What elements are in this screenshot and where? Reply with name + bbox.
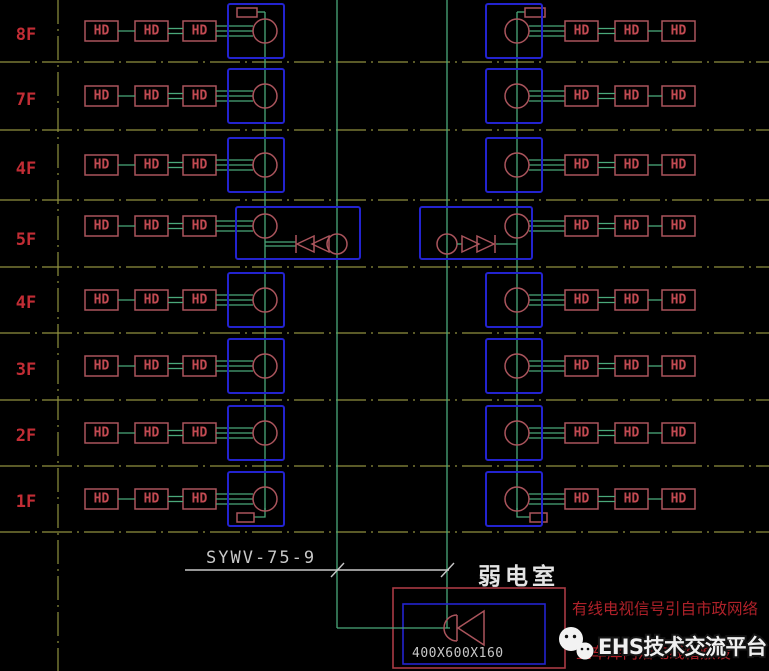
riser-diagram-canvas: HD HD HD HD HD HD	[0, 0, 769, 671]
room-title: 弱电室	[478, 563, 559, 590]
amplifier-floor-row	[85, 207, 695, 259]
floor-label: 4F	[16, 293, 36, 313]
floor-label: 1F	[16, 492, 36, 512]
terminator-resistor	[530, 513, 547, 522]
cabinet-size-label: 400X600X160	[412, 646, 504, 661]
hd-outlet-chain-left	[85, 216, 253, 236]
hd-outlet-chain-right	[529, 489, 695, 509]
hd-outlet-chain-right	[529, 356, 695, 376]
floor-label: 3F	[16, 360, 36, 380]
hd-outlet-chain-right	[529, 86, 695, 106]
hd-outlet-chain-right	[529, 290, 695, 310]
catv-riser-diagram: HD HD HD HD HD HD	[0, 0, 769, 671]
headend-amplifier-arrow	[458, 611, 484, 645]
note-source-line: 有线电视信号引自市政网络	[572, 600, 758, 618]
cable-type-label: SYWV-75-9	[206, 548, 316, 568]
weak-current-room: SYWV-75-9 弱电室 400X600X160	[185, 548, 565, 668]
terminator-resistor	[237, 8, 257, 17]
floor-labels: 8F 7F 4F 5F 4F 3F 2F 1F	[16, 25, 36, 512]
hd-outlet-chain-right	[529, 216, 695, 236]
hd-outlet-chain-right	[529, 155, 695, 175]
floor-rows	[85, 4, 695, 526]
floor-label: 5F	[16, 230, 36, 250]
hd-outlet-chain-right	[529, 21, 695, 41]
floor-label: 8F	[16, 25, 36, 45]
watermark-text: EHS技术交流平台	[598, 635, 767, 659]
hd-outlet-chain-right	[529, 423, 695, 443]
floor-label: 2F	[16, 426, 36, 446]
floor-label: 7F	[16, 90, 36, 110]
terminator-resistor	[237, 513, 254, 522]
floor-label: 4F	[16, 159, 36, 179]
